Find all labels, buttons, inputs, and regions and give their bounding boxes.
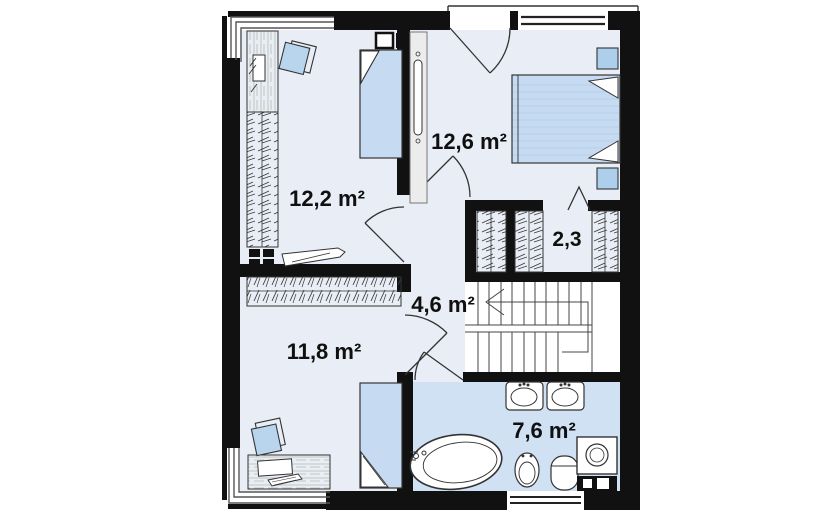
wall-left-cap [222,434,240,448]
sink [547,382,584,410]
window-glass [518,11,608,30]
toilet [515,453,539,487]
area-label-bathroom: 7,6 m² [512,418,576,443]
wall-closet-divider [506,203,515,272]
wall-left [222,58,240,440]
nightstand [597,48,618,69]
wall-closet-top-left [465,200,543,211]
single-bed [360,50,402,158]
desk [247,31,278,112]
wall-bottom-left [326,491,507,510]
wall-top-thin [228,11,344,17]
area-label-bedroom-top-left: 12,2 m² [289,186,365,211]
closet-cabinet [515,211,543,272]
balcony-outline [448,6,638,11]
area-label-closet: 2,3 [552,228,581,251]
window-top-right [518,11,608,30]
area-label-bedroom-bottom-left: 11,8 m² [287,339,362,364]
closet-cabinet [477,211,506,272]
floor-plan-page: 12,2 m² 12,6 m² 2,3 4,6 m² 11,8 m² 7,6 m… [0,0,830,520]
bathroom-cabinet [577,476,617,491]
radiator [410,32,427,203]
radiator-panel [414,60,422,135]
floor-plan-canvas: 12,2 m² 12,6 m² 2,3 4,6 m² 11,8 m² 7,6 m… [0,0,830,520]
window-glass [507,491,584,510]
wall-hall-closet [465,200,476,282]
area-label-bedroom-top-right: 12,6 m² [431,129,507,154]
area-label-hallway: 4,6 m² [411,292,475,317]
stairwell-floor [465,282,620,372]
sink [506,382,543,410]
nightstand [597,168,618,189]
double-bed [512,75,620,163]
closet-cabinet [592,211,618,272]
desk [248,455,330,489]
wall-right [620,11,640,510]
wall-bathroom-top [463,372,620,382]
single-bed [360,383,402,488]
bidet [551,456,578,490]
laptop [258,459,293,476]
wall-closet-top-right [588,200,620,211]
wall-left-thin-top [222,16,227,62]
wall-bottom-right [584,491,624,510]
wall-left-thin-bottom [222,440,227,500]
wardrobe [247,112,278,247]
wall-stairs-top [465,272,620,282]
wall-bottom-thin [228,504,330,509]
wall-top-main [334,11,450,30]
washing-machine [577,437,617,474]
window-bathroom [507,491,584,510]
wardrobe [247,277,401,306]
nightstand [376,33,406,48]
